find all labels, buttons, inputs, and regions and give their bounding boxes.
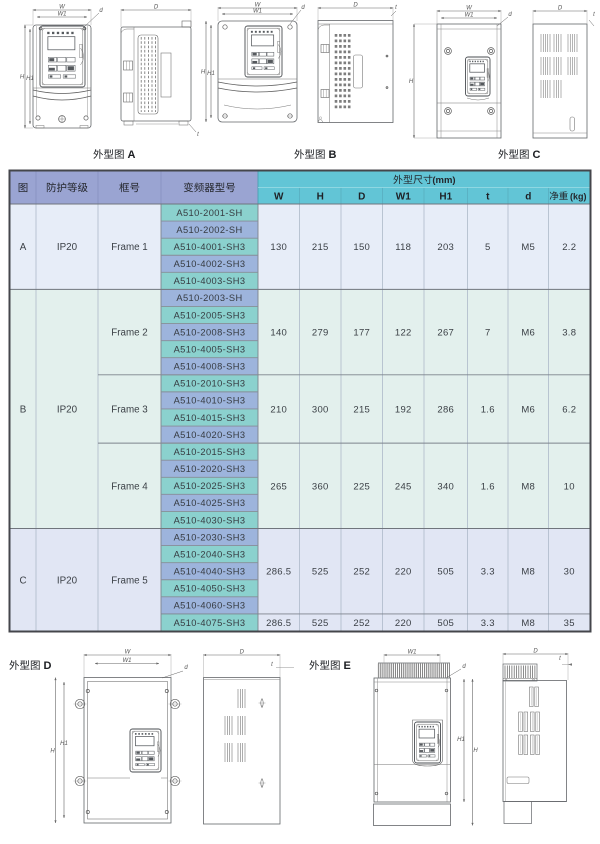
svg-text:A510-4060-SH3: A510-4060-SH3 [174, 601, 246, 611]
svg-text:W: W [466, 6, 473, 12]
svg-text:A510-4008-SH3: A510-4008-SH3 [174, 362, 246, 372]
svg-text:C: C [19, 575, 26, 586]
svg-text:H1: H1 [207, 71, 215, 77]
svg-text:1.6: 1.6 [481, 481, 495, 492]
svg-text:A510-4030-SH3: A510-4030-SH3 [174, 515, 246, 525]
svg-text:215: 215 [353, 404, 370, 415]
svg-text:B: B [20, 404, 27, 415]
svg-text:A: A [20, 242, 27, 253]
svg-text:122: 122 [395, 328, 412, 339]
svg-text:W: W [125, 650, 132, 656]
svg-text:220: 220 [395, 567, 412, 578]
svg-text:279: 279 [312, 328, 329, 339]
svg-text:A510-4010-SH3: A510-4010-SH3 [174, 396, 246, 406]
svg-text:A510-2020-SH3: A510-2020-SH3 [174, 464, 246, 474]
svg-text:252: 252 [353, 618, 370, 629]
svg-text:A510-4015-SH3: A510-4015-SH3 [174, 413, 246, 423]
svg-text:3.3: 3.3 [481, 618, 495, 629]
svg-text:d: d [301, 5, 305, 11]
svg-text:192: 192 [395, 404, 412, 415]
svg-text:505: 505 [437, 567, 454, 578]
svg-text:H: H [409, 79, 414, 85]
svg-text:A510-4025-SH3: A510-4025-SH3 [174, 498, 246, 508]
svg-text:D: D [358, 191, 365, 202]
svg-text:505: 505 [437, 618, 454, 629]
svg-text:286.5: 286.5 [266, 618, 291, 629]
svg-text:IP20: IP20 [57, 575, 78, 586]
svg-text:d: d [525, 191, 531, 202]
svg-text:D: D [558, 6, 563, 12]
svg-text:A510-4075-SH3: A510-4075-SH3 [174, 618, 246, 628]
svg-text:W1: W1 [58, 12, 67, 18]
svg-text:H: H [473, 748, 478, 754]
svg-text:30: 30 [564, 567, 575, 578]
svg-text:H: H [50, 748, 55, 754]
svg-text:245: 245 [395, 481, 412, 492]
svg-text:d: d [184, 665, 188, 671]
svg-text:360: 360 [312, 481, 329, 492]
svg-text:Frame 5: Frame 5 [111, 575, 148, 586]
svg-text:H1: H1 [60, 741, 68, 747]
svg-text:10: 10 [564, 481, 575, 492]
svg-text:Frame 2: Frame 2 [111, 328, 147, 339]
svg-text:W: W [59, 5, 66, 11]
svg-text:A510-2010-SH3: A510-2010-SH3 [174, 379, 246, 389]
svg-text:A510-2002-SH: A510-2002-SH [176, 225, 242, 235]
svg-text:210: 210 [270, 404, 287, 415]
svg-text:A510-4002-SH3: A510-4002-SH3 [174, 259, 246, 269]
svg-text:M8: M8 [521, 567, 535, 578]
svg-text:220: 220 [395, 618, 412, 629]
svg-text:M5: M5 [521, 242, 535, 253]
svg-text:D: D [240, 650, 245, 656]
svg-text:A510-2015-SH3: A510-2015-SH3 [174, 447, 246, 457]
svg-text:A510-4001-SH3: A510-4001-SH3 [174, 242, 246, 252]
svg-text:340: 340 [437, 481, 454, 492]
svg-text:d: d [462, 664, 466, 670]
svg-text:M8: M8 [521, 481, 535, 492]
svg-text:M6: M6 [521, 328, 535, 339]
svg-text:(mm): (mm) [432, 175, 455, 186]
svg-text:D: D [533, 649, 538, 655]
svg-text:150: 150 [353, 242, 370, 253]
svg-text:265: 265 [270, 481, 287, 492]
svg-text:A510-4003-SH3: A510-4003-SH3 [174, 276, 246, 286]
svg-text:IP20: IP20 [57, 242, 78, 253]
svg-text:A510-2030-SH3: A510-2030-SH3 [174, 532, 246, 542]
svg-text:3.3: 3.3 [481, 567, 495, 578]
svg-text:W1: W1 [465, 13, 474, 19]
svg-text:267: 267 [437, 328, 454, 339]
svg-text:t: t [593, 12, 595, 18]
svg-text:6.2: 6.2 [562, 404, 576, 415]
svg-text:3.8: 3.8 [562, 328, 576, 339]
svg-text:A510-2005-SH3: A510-2005-SH3 [174, 310, 246, 320]
svg-text:252: 252 [353, 567, 370, 578]
svg-text:D: D [44, 660, 52, 672]
svg-text:A510-4020-SH3: A510-4020-SH3 [174, 430, 246, 440]
svg-text:t: t [395, 5, 397, 11]
svg-text:H1: H1 [439, 191, 452, 202]
svg-text:Frame 4: Frame 4 [111, 481, 148, 492]
svg-text:d: d [99, 8, 103, 14]
svg-text:W1: W1 [396, 191, 411, 202]
svg-text:7: 7 [485, 328, 491, 339]
svg-text:H: H [20, 75, 25, 81]
svg-text:C: C [533, 149, 541, 161]
svg-text:A510-2001-SH: A510-2001-SH [176, 208, 242, 218]
svg-text:525: 525 [312, 618, 329, 629]
svg-text:Frame 1: Frame 1 [111, 242, 147, 253]
svg-text:1.6: 1.6 [481, 404, 495, 415]
svg-text:140: 140 [270, 328, 287, 339]
svg-text:215: 215 [312, 242, 329, 253]
svg-text:W1: W1 [408, 650, 417, 656]
svg-text:H1: H1 [457, 737, 465, 743]
svg-text:177: 177 [353, 328, 370, 339]
svg-text:t: t [271, 662, 273, 668]
svg-text:W1: W1 [253, 9, 262, 15]
svg-text:A510-4005-SH3: A510-4005-SH3 [174, 344, 246, 354]
svg-text:A510-2003-SH: A510-2003-SH [176, 293, 242, 303]
svg-text:A510-2040-SH3: A510-2040-SH3 [174, 549, 246, 559]
svg-text:B: B [329, 149, 337, 161]
svg-text:H: H [317, 191, 324, 202]
svg-text:H: H [201, 70, 206, 76]
svg-text:Frame 3: Frame 3 [111, 404, 148, 415]
svg-text:D: D [154, 5, 159, 11]
svg-text:t: t [197, 132, 199, 138]
svg-text:E: E [344, 660, 351, 672]
svg-text:525: 525 [312, 567, 329, 578]
svg-text:W: W [274, 191, 284, 202]
svg-text:286: 286 [437, 404, 454, 415]
svg-text:D: D [353, 3, 358, 9]
svg-text:118: 118 [395, 242, 411, 253]
svg-text:t: t [559, 656, 561, 662]
svg-text:2.2: 2.2 [562, 242, 576, 253]
svg-text:A: A [128, 149, 136, 161]
svg-text:W1: W1 [123, 658, 132, 664]
svg-text:286.5: 286.5 [266, 567, 291, 578]
svg-text:203: 203 [437, 242, 454, 253]
svg-text:A510-4050-SH3: A510-4050-SH3 [174, 584, 246, 594]
svg-text:35: 35 [564, 618, 575, 629]
svg-text:300: 300 [312, 404, 329, 415]
svg-text:d: d [508, 12, 512, 18]
svg-text:A510-2008-SH3: A510-2008-SH3 [174, 327, 246, 337]
svg-text:225: 225 [353, 481, 370, 492]
svg-text:H1: H1 [26, 76, 34, 82]
svg-text:(kg): (kg) [570, 191, 587, 201]
svg-text:M8: M8 [521, 618, 535, 629]
svg-text:A510-2025-SH3: A510-2025-SH3 [174, 481, 246, 491]
svg-text:M6: M6 [521, 404, 535, 415]
svg-text:A510-4040-SH3: A510-4040-SH3 [174, 567, 246, 577]
svg-text:5: 5 [485, 242, 491, 253]
svg-text:IP20: IP20 [57, 404, 78, 415]
svg-text:130: 130 [270, 242, 287, 253]
